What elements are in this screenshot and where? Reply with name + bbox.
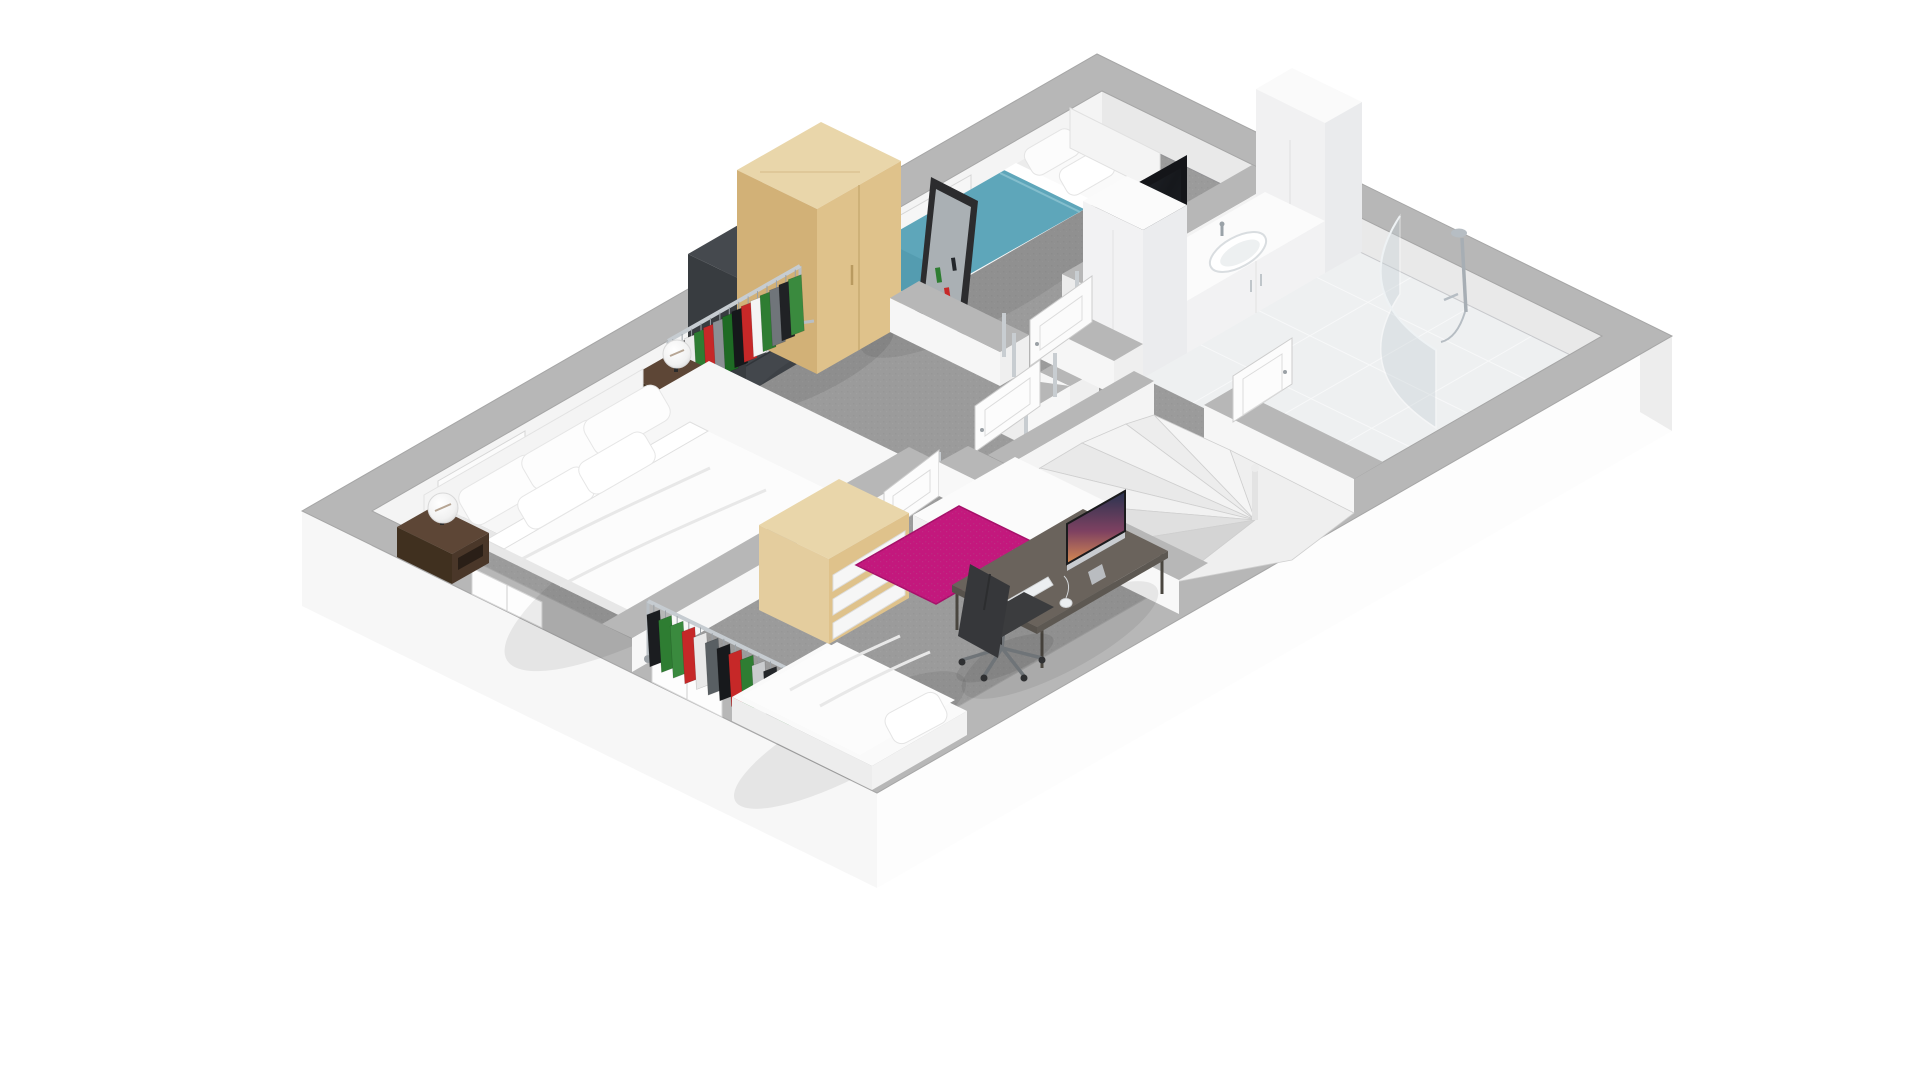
shower-head [1451, 229, 1467, 238]
floor-plan-render [0, 0, 1920, 1080]
floor-plan-svg [0, 0, 1920, 1080]
door-handle [1035, 342, 1039, 346]
clothing-item [788, 275, 804, 336]
mouse [1060, 599, 1072, 608]
door-handle [1283, 370, 1287, 374]
door-handle [980, 428, 984, 432]
